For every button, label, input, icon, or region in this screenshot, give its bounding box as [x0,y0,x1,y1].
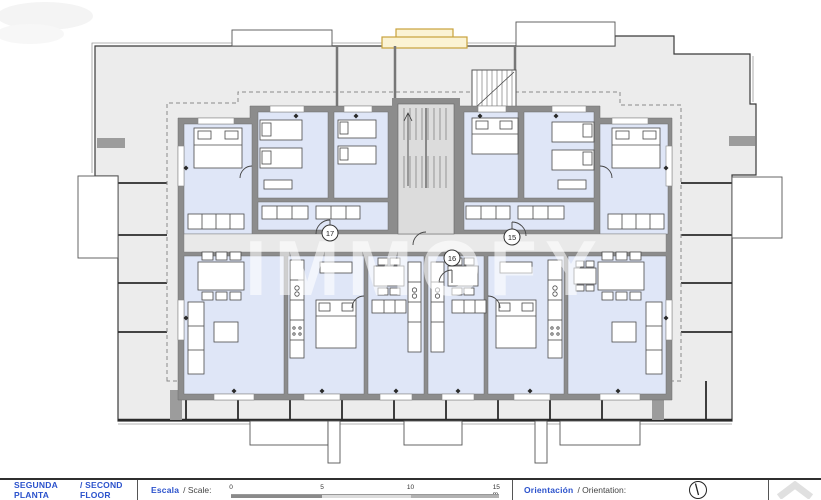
scale-tick: 5 [320,484,324,491]
single-bed [260,148,302,168]
scale-tick: 10 [407,484,414,491]
orientation-label-es: Orientación [524,485,573,495]
wardrobe [316,206,360,219]
single-bed [552,122,594,142]
unit-badge-15: 15 [504,229,520,245]
watermark-text: IMMOFY [245,224,605,312]
scroll-top-area [768,480,821,500]
single-bed [260,120,302,140]
coffee-table [612,322,636,342]
scale-label-en: / Scale: [183,485,211,495]
floor-title-es: SEGUNDA PLANTA [14,480,75,500]
floorplan-page: IMMOFY 17 16 15 SEGUNDA PLANTA / SECOND … [0,0,821,500]
orientation-section: Orientación / Orientation: [512,480,768,500]
unit-badge-17: 17 [322,225,338,241]
compass-icon [688,480,708,500]
coffee-table [214,322,238,342]
dining-table [198,252,244,300]
double-bed [612,128,660,168]
scale-section: Escala / Scale: 0 5 10 15 m [137,480,512,500]
unit-badge-16: 16 [444,250,460,266]
stair-core [398,104,454,234]
floor-plan-svg: IMMOFY 17 16 15 [0,0,821,478]
svg-text:16: 16 [448,254,456,263]
scale-label-es: Escala [151,485,179,495]
bench [558,180,586,189]
wardrobe [188,214,244,229]
highlighted-element [382,29,467,48]
single-bed [338,146,376,164]
floor-title: SEGUNDA PLANTA / SECOND FLOOR [0,480,137,500]
svg-text:15: 15 [508,233,516,242]
single-bed [338,120,376,138]
scroll-top-chevron-icon[interactable] [775,481,815,499]
scale-tick: 0 [229,484,233,491]
wardrobe [518,206,564,219]
bench [264,180,292,189]
scale-segment [322,495,410,498]
faded-logo-smudge [0,2,93,44]
scale-segment [231,495,322,498]
sofa [646,302,662,374]
double-bed [194,128,242,168]
escape-stair [472,70,516,112]
footer-bar: SEGUNDA PLANTA / SECOND FLOOR Escala / S… [0,478,821,500]
wardrobe [262,206,308,219]
orientation-label-en: / Orientation: [577,485,626,495]
single-bed [552,150,594,170]
scale-ruler: 0 5 10 15 m [231,483,499,499]
floor-title-en: / SECOND FLOOR [80,480,137,500]
sofa [188,302,204,374]
wardrobe [608,214,664,229]
double-bed [472,118,518,154]
wardrobe [466,206,510,219]
svg-text:17: 17 [326,229,334,238]
scale-segment [411,495,499,498]
